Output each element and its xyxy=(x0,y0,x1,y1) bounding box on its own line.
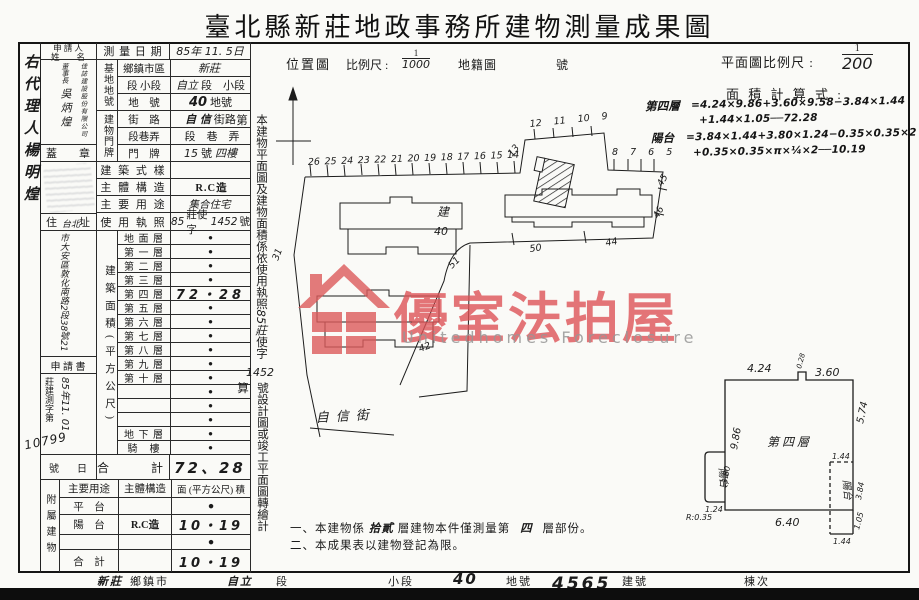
left-balcony-height: 3.80 xyxy=(720,465,732,484)
floor-label: 第 八 層 xyxy=(118,343,171,356)
floor-row: ● xyxy=(118,385,250,399)
footer-building-no-label: 建號 xyxy=(622,573,648,589)
floor-label: 第 七 層 xyxy=(118,329,171,342)
applicant-chairman-title: 董事長 xyxy=(61,63,69,84)
floor-value: ● xyxy=(171,231,250,244)
floor-label: 第 九 層 xyxy=(118,357,171,370)
footer-section-label: 段 xyxy=(276,573,289,589)
dim-left: 9.86 xyxy=(729,427,744,451)
row-value-print: 地號 xyxy=(210,94,232,110)
floor-row: 第 七 層● xyxy=(118,329,250,343)
survey-date-value: 85年 11. 5日 xyxy=(170,43,250,60)
floor-plan-labels: 4.24 0.28 3.60 5.74 9.86 第四層 6.40 陽台 3.8… xyxy=(686,352,871,546)
annex-row-total: 合 計 10・19 xyxy=(60,550,250,572)
footer-lot-hand: 40 xyxy=(453,570,478,588)
row-label: 主 體 構 造 xyxy=(97,179,171,195)
map-labels: 26 25 24 23 22 21 20 19 18 17 16 15 14 1… xyxy=(272,111,672,426)
annex-struct: R.C造 xyxy=(119,515,172,534)
annex-struct xyxy=(119,535,172,549)
floor-value: ● xyxy=(171,343,250,356)
annex-table: 主要用途 主體構造 面 (平方公尺) 積 平 台 ● 陽 台 R.C造 10・1… xyxy=(60,480,250,572)
floor-label: 第 三 層 xyxy=(118,273,171,286)
lot-number-42: 42 xyxy=(417,340,432,354)
street-name: 自信街 xyxy=(315,408,376,426)
application-form-label: 申 請 書 xyxy=(40,357,97,374)
cadastral-map-label: 地籍圖 xyxy=(458,56,497,73)
seal-label: 蓋 章 xyxy=(40,145,97,162)
annex-area: 10・19 xyxy=(172,550,250,572)
annotation-strip-top: 本建物平面圖及建物面積係依使用執照85莊使字第 xyxy=(251,114,271,366)
row-value-hand: 15 xyxy=(184,147,198,160)
plan-scale-denominator: 200 xyxy=(842,55,873,72)
floor-row: 騎 樓● xyxy=(118,441,250,455)
footer-section-hand: 自立 xyxy=(227,573,253,589)
lot-number-50: 50 xyxy=(529,242,543,255)
cadastral-no-label: 號 xyxy=(556,56,568,73)
floor-row: 地 下 層● xyxy=(118,427,250,441)
row-section: 段 小段 自立段 小段 xyxy=(118,77,250,94)
subject-building-hatched xyxy=(528,157,574,208)
site-field-rows: 鄉鎮市區 新莊 段 小段 自立段 小段 地 號 40地號 街 路 自 信街路 段… xyxy=(118,60,250,162)
floor-row: 第 八 層● xyxy=(118,343,250,357)
floor-label: 騎 樓 xyxy=(118,441,171,454)
floor-label: 第四層 xyxy=(767,435,812,449)
floor-value: ● xyxy=(171,427,250,440)
floor-value: ● xyxy=(171,357,250,370)
row-value-hand: 40 xyxy=(189,95,207,110)
annex-h-struct: 主體構造 xyxy=(119,480,172,497)
note-1: 一、本建物係 拾貳 層建物本件僅測量第 四 層部份。 xyxy=(290,520,593,536)
row-lot-number: 地 號 40地號 xyxy=(118,94,250,111)
footer-lot-label: 地號 xyxy=(506,573,532,589)
building-lower-left-row2 xyxy=(325,322,433,347)
floor-plan: 4.24 0.28 3.60 5.74 9.86 第四層 6.40 陽台 3.8… xyxy=(685,352,909,570)
subject-lot-number: 40 xyxy=(434,225,448,238)
annotation-strip-number: 1452 xyxy=(246,366,274,379)
annex-row-balcony: 陽 台 R.C造 10・19 xyxy=(60,515,250,535)
floor-row: 第 六 層● xyxy=(118,315,250,329)
floor-value: 72・28 xyxy=(171,287,250,300)
row-township: 鄉鎮市區 新莊 xyxy=(118,60,250,77)
building-right-row1 xyxy=(505,189,652,217)
row-use: 主 要 用 途 集合住宅 xyxy=(97,196,250,213)
row-value-hand2: 四樓 xyxy=(215,145,237,161)
lot-number-51: 51 xyxy=(446,255,462,271)
dim-right: 5.74 xyxy=(855,401,870,425)
annex-area: ● xyxy=(172,535,250,549)
building-lower-left-row1 xyxy=(317,290,439,322)
applicant-name-header: 申 請 人 姓 名 xyxy=(40,43,97,60)
floor-value: ● xyxy=(171,245,250,258)
row-label: 鄉鎮市區 xyxy=(118,60,171,76)
row-value-print: 號 xyxy=(201,145,212,161)
registry-stamp xyxy=(42,162,95,214)
floor-value: ● xyxy=(171,301,250,314)
note1-c: 層部份。 xyxy=(543,523,593,535)
door-plate-group-label: 建物門牌 xyxy=(97,111,118,162)
floor-label xyxy=(118,413,171,426)
lot-numbers-top: 26 25 24 23 22 21 20 19 18 17 16 15 14 xyxy=(308,150,520,168)
annex-h-area: 面 (平方公尺) 積 xyxy=(172,480,250,497)
scale-denominator: 1000 xyxy=(402,59,430,71)
footer-town-label: 鄉鎮市 xyxy=(130,573,169,589)
address-label-cell: 住 址 台北 xyxy=(40,214,97,231)
floor-label xyxy=(118,385,171,398)
v-b: R.C造 xyxy=(195,180,227,195)
lot-ticks-right-top xyxy=(614,159,654,171)
annex-area: 10・19 xyxy=(172,515,250,534)
row-label: 主 要 用 途 xyxy=(97,196,171,212)
floor-label xyxy=(118,399,171,412)
annex-area: ● xyxy=(172,498,250,514)
location-scale-fraction: 1 1000 xyxy=(402,48,430,71)
annex-struct xyxy=(119,550,172,572)
structure-rows: 建 築 式 樣 主 體 構 造 R.C造 主 要 用 途 集合住宅 使 用 執 … xyxy=(97,162,250,231)
right-balcony-top-dim: 1.44 xyxy=(832,452,850,461)
floor-label: 第 四 層 xyxy=(118,287,171,300)
floor-row: ● xyxy=(118,399,250,413)
row-style: 建 築 式 樣 xyxy=(97,162,250,179)
annex-struct xyxy=(119,498,172,514)
row-value-print: 段 小段 xyxy=(201,77,245,93)
survey-result-sheet: 臺北縣新莊地政事務所建物測量成果圖 右代理人楊明煌 申 請 人 姓 名 佳誌建設… xyxy=(0,0,919,600)
row-value-hand: 自 信 xyxy=(185,111,211,127)
strip-text-1: 本建物平面圖及建物面積係依使用執照 xyxy=(255,114,267,310)
floor-row: ● xyxy=(118,413,250,427)
floor-area-rows: 地 面 層● 第 一 層● 第 二 層● 第 三 層● 第 四 層72・28 第… xyxy=(118,231,250,455)
floor-row-4: 第 四 層72・28 xyxy=(118,287,250,301)
note-2: 二、本成果表以建物登記為限。 xyxy=(290,537,465,553)
plan-scale-label: 平面圖比例尺 : xyxy=(721,52,814,71)
floor-label: 第 一 層 xyxy=(118,245,171,258)
annex-use: 陽 台 xyxy=(60,515,119,534)
row-label: 建 築 式 樣 xyxy=(97,162,171,178)
plan-scale-fraction: 1 200 xyxy=(842,44,873,72)
row-value-hand: 新莊 xyxy=(198,60,220,76)
floor-label: 地 面 層 xyxy=(118,231,171,244)
floor-row: 地 面 層● xyxy=(118,231,250,245)
area-column-label: 建築面積(平方公尺) xyxy=(97,231,118,455)
row-label: 段 小段 xyxy=(118,77,171,93)
footer-unit-label: 棟次 xyxy=(744,573,770,589)
row-label: 街 路 xyxy=(118,111,171,127)
annex-row-terrace: 平 台 ● xyxy=(60,498,250,515)
floor-row: 第 一 層● xyxy=(118,245,250,259)
lot-numbers-right-top: 8 7 6 5 xyxy=(612,147,672,158)
annex-h-use: 主要用途 xyxy=(60,480,119,497)
strip-hand-1: 85莊 xyxy=(254,310,268,336)
floor-row: 第 九 層● xyxy=(118,357,250,371)
floor-label: 第 五 層 xyxy=(118,301,171,314)
dim-bottom: 6.40 xyxy=(775,516,800,529)
lot-numbers-upper-right: 12 11 10 9 xyxy=(529,111,608,130)
applicant-company: 佳誌建設股份有限公司 xyxy=(79,63,87,138)
floor-label: 第 六 層 xyxy=(118,315,171,328)
floor-row: 第 二 層● xyxy=(118,259,250,273)
row-label: 使 用 執 照 xyxy=(97,213,171,230)
note1-floors-hand: 拾貳 xyxy=(369,521,394,535)
annotation-strip-bottom: 號設計圖或竣工平面圖轉繪計算 xyxy=(252,382,272,540)
floor-value: ● xyxy=(171,329,250,342)
row-value-hand: 自立 xyxy=(176,77,198,93)
row-lane: 段巷弄 段 巷 弄 xyxy=(118,128,250,145)
agent-name: 右代理人楊明煌 xyxy=(21,42,42,208)
floor-label: 地 下 層 xyxy=(118,427,171,440)
row-structure: 主 體 構 造 R.C造 xyxy=(97,179,250,196)
address-text: 市大安區敦化南路2段38號21 xyxy=(58,233,68,352)
row-value-print: 段 巷 弄 xyxy=(185,128,240,144)
lot-number-31: 31 xyxy=(272,247,285,262)
floor-label: 第 十 層 xyxy=(118,371,171,384)
lot-number-45: 45 xyxy=(655,173,671,189)
annex-row-blank: ● xyxy=(60,535,250,550)
right-balcony-low-dim: 1.05 xyxy=(852,511,865,531)
subject-lot-char: 建 xyxy=(437,205,451,219)
row-door-plate: 門 牌 15號四樓 xyxy=(118,145,250,162)
dim-notch: 0.28 xyxy=(795,352,807,370)
file-prefix: 莊建測字第 xyxy=(43,377,56,422)
radius-note: R:0.35 xyxy=(686,513,712,522)
total-label: 合 計 xyxy=(97,455,170,480)
location-map-caption: 位置圖 xyxy=(286,54,331,73)
parcel-boundary-left xyxy=(294,177,320,437)
address-hand-prefix: 台北 xyxy=(62,217,80,230)
site-lot-group-label: 基地地號 xyxy=(97,60,118,111)
v-a: 85 xyxy=(171,216,184,228)
annex-header: 主要用途 主體構造 面 (平方公尺) 積 xyxy=(60,480,250,498)
v-c: 1452 xyxy=(211,216,238,228)
floor-value: ● xyxy=(171,315,250,328)
right-balcony-bottom-dim: 1.44 xyxy=(833,537,851,546)
floor-value: ● xyxy=(171,413,250,426)
application-info: 莊建測字第 85年11. 01 10799 xyxy=(40,374,97,455)
address-column: 市大安區敦化南路2段38號21 xyxy=(40,231,97,357)
agent-strip: 右代理人楊明煌 xyxy=(18,42,41,573)
right-balcony-height: 3.84 xyxy=(854,481,866,500)
row-label: 門 牌 xyxy=(118,145,171,161)
annex-use xyxy=(60,535,119,549)
building-right-row2 xyxy=(512,217,644,227)
annex-use: 平 台 xyxy=(60,498,119,514)
street-underline xyxy=(310,428,394,435)
day-label: 日 xyxy=(77,460,87,475)
note1-a: 一、本建物係 xyxy=(290,523,365,535)
no-day-row: 號 日 xyxy=(40,455,97,480)
annex-use: 合 計 xyxy=(60,550,119,572)
floor-row: 第 五 層● xyxy=(118,301,250,315)
applicant-chairman-name: 吳炳煌 xyxy=(59,88,72,130)
floor-row: 第 十 層● xyxy=(118,371,250,385)
page-title: 臺北縣新莊地政事務所建物測量成果圖 xyxy=(0,7,919,44)
lot-number-46: 46 xyxy=(651,205,667,221)
row-license: 使 用 執 照 85莊使字1452號 xyxy=(97,213,250,231)
scan-edge-bar xyxy=(0,588,919,600)
site-plan: 26 25 24 23 22 21 20 19 18 17 16 15 14 1… xyxy=(272,85,702,457)
dim-top: 4.24 xyxy=(747,362,772,375)
right-balcony-label: 陽台 xyxy=(840,479,854,501)
row-label: 地 號 xyxy=(118,94,171,110)
no-label: 號 xyxy=(49,460,59,475)
location-scale-label: 比例尺 : xyxy=(346,56,388,73)
total-value: 72、28 xyxy=(170,455,250,480)
dim-top-right: 3.60 xyxy=(815,366,840,379)
v-d: 號 xyxy=(240,214,251,229)
floor-value: ● xyxy=(171,441,250,454)
floor-value: ● xyxy=(171,259,250,272)
floor-label: 第 二 層 xyxy=(118,259,171,272)
floor-value: ● xyxy=(171,399,250,412)
applicant-names: 佳誌建設股份有限公司 董事長 吳炳煌 xyxy=(40,60,97,145)
calc-floor4-line2: +1.44×1.05──72.28 xyxy=(699,112,818,126)
lot-number-44: 44 xyxy=(605,236,619,249)
survey-date-label: 測 量 日 期 xyxy=(97,43,170,60)
annex-column-label: 附屬建物 xyxy=(40,480,60,572)
footer-town-hand: 新莊 xyxy=(97,573,123,589)
note1-b: 層建物本件僅測量第 xyxy=(398,523,511,535)
north-arrow-head xyxy=(289,88,297,100)
row-label: 段巷弄 xyxy=(118,128,171,144)
footer-subsection-label: 小段 xyxy=(388,573,414,589)
note1-floor-no-hand: 四 xyxy=(514,521,539,535)
